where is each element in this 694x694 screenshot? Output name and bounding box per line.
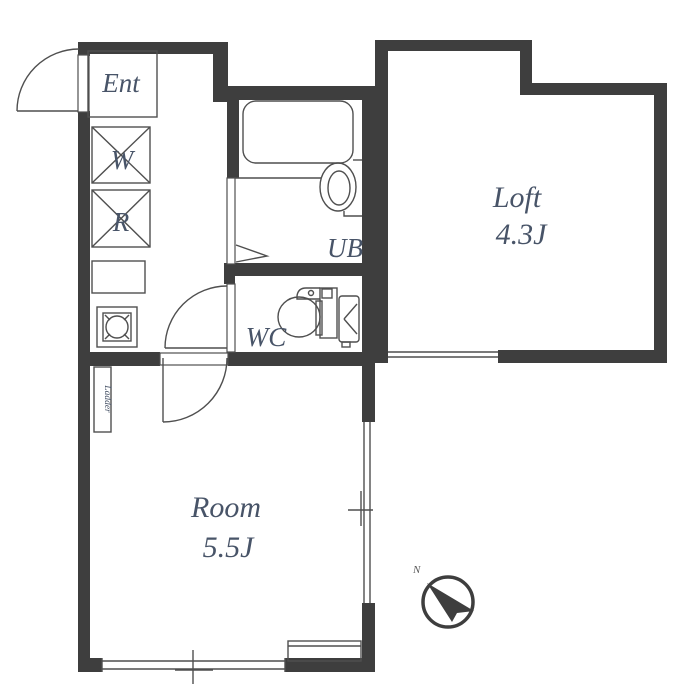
loft-wall-left: [375, 40, 388, 363]
toilet-foot: [342, 342, 350, 347]
wall-room-top-right: [228, 352, 375, 366]
wall-room-top-left: [90, 352, 160, 366]
washbasin-step: [344, 211, 362, 216]
kitchen-counter: [92, 261, 145, 293]
fridge-label: R: [112, 207, 130, 237]
room-door-opening: [160, 353, 228, 365]
bath-door-opening: [227, 178, 235, 264]
toilet-label: WC: [246, 322, 287, 352]
washbasin-bowl: [328, 171, 350, 205]
room-labels: Ent W R UB WC Loft 4.3J Room 5.5J Ladder: [101, 68, 548, 564]
toilet-icon: [278, 288, 359, 347]
wall-ub-wc-divider: [224, 263, 375, 276]
room-label: Room: [190, 491, 261, 524]
wall-step: [213, 42, 228, 102]
loft-wall-bottom: [498, 350, 667, 363]
wall-corridor-divider: [227, 100, 239, 178]
right-window: [348, 422, 375, 603]
floor-plan-drawing: N Ent W R UB WC Loft 4.3J Room 5.5J Ladd…: [0, 0, 694, 694]
bath-label: UB: [327, 233, 363, 263]
bathtub-icon: [243, 101, 353, 163]
stove-icon: [97, 307, 137, 347]
wc-door-swing-arc: [165, 286, 227, 348]
wall-left: [78, 111, 90, 672]
entrance-door-swing-arc: [17, 49, 79, 111]
washer-label: W: [111, 145, 136, 175]
bottom-window: [102, 650, 285, 684]
loft-size-label: 4.3J: [496, 218, 549, 251]
wc-door-opening: [227, 284, 235, 352]
wall-top: [78, 42, 228, 54]
floor-plan: N Ent W R UB WC Loft 4.3J Room 5.5J Ladd…: [0, 0, 694, 694]
cistern-chevron-2: [344, 319, 357, 334]
loft-wall-right: [654, 83, 667, 363]
room-door-swing-arc: [163, 358, 227, 422]
stove-tick-se: [124, 334, 129, 339]
stove-tick-sw: [105, 334, 110, 339]
wall-ub-top: [228, 86, 375, 100]
wall-right-upper: [362, 86, 375, 422]
cistern-chevron-1: [344, 304, 357, 319]
compass-north-label: N: [412, 564, 421, 576]
loft-wall-top-left: [375, 40, 532, 51]
compass-icon: N: [412, 564, 474, 627]
ladder-label: Ladder: [102, 384, 112, 413]
stove-tick-nw: [105, 315, 110, 320]
stove-tick-ne: [124, 315, 129, 320]
toilet-button: [309, 291, 314, 296]
loft-wall-top-right: [520, 83, 667, 95]
toilet-panel: [322, 289, 332, 298]
wall-bottom-left: [78, 658, 104, 672]
room-size-label: 5.5J: [203, 531, 256, 564]
toilet-cistern: [339, 296, 359, 342]
bath-folding-door-icon: [236, 245, 267, 262]
entrance-label: Ent: [101, 68, 141, 98]
wall-right-lower: [362, 603, 375, 672]
loft-label: Loft: [492, 181, 542, 214]
